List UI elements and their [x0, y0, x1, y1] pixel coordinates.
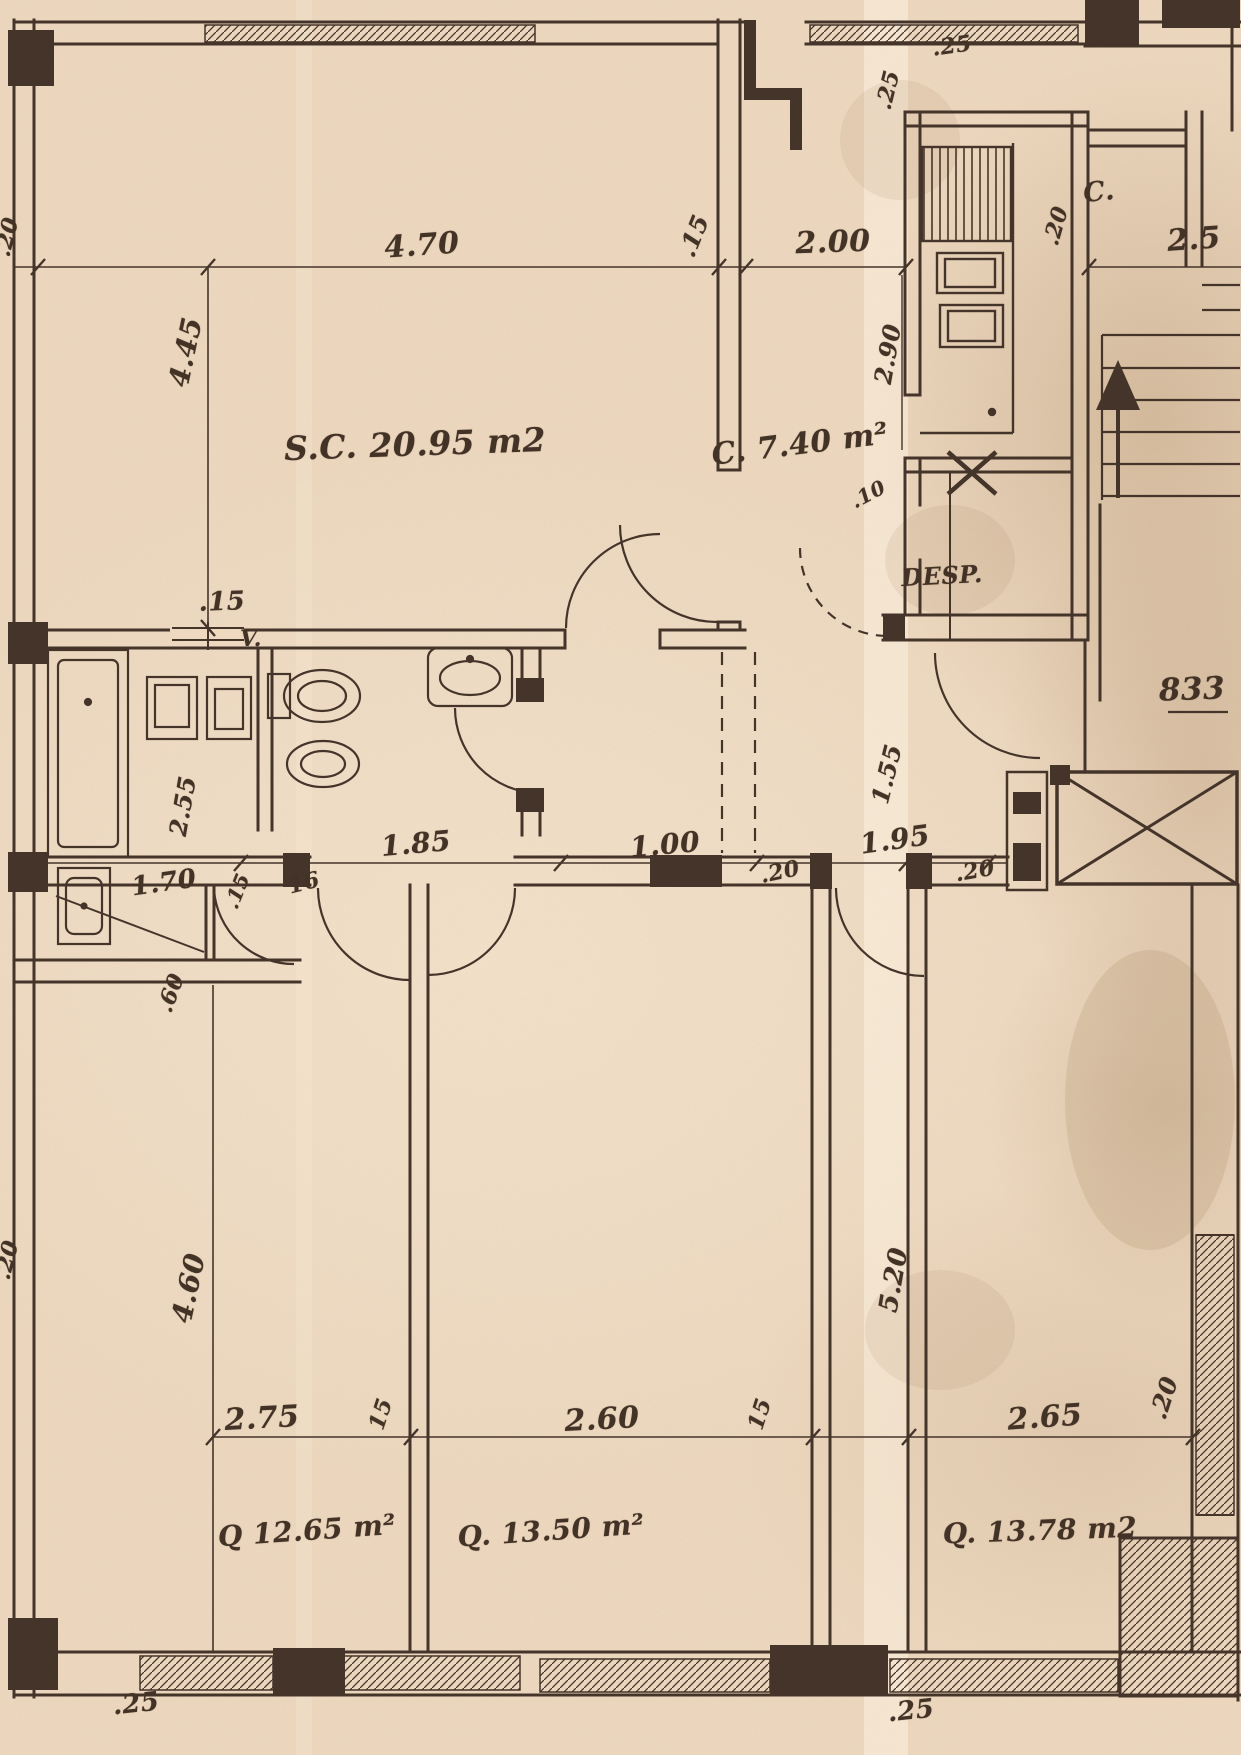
room-bed2-label: Q. 13.50 m²	[457, 1511, 646, 1552]
dim-wall-15-bath: .15	[198, 588, 246, 616]
floor-plan-scan: 4.704.45.152.00.25.25C..202.52.90S.C. 20…	[0, 0, 1241, 1755]
sheet-number-label: 833	[1158, 673, 1225, 706]
dim-wall-15-bed1: 15	[366, 1396, 397, 1433]
dim-height-155: 1.55	[868, 742, 906, 806]
dim-wall-15-top: .15	[675, 211, 713, 260]
dim-wall-20-bed3: .20	[1146, 1374, 1182, 1423]
dim-25-top: .25	[931, 32, 973, 59]
dim-width-bed1: 2.75	[224, 1402, 301, 1436]
dim-door-10: .10	[847, 477, 888, 512]
dim-25-right: 2.5	[1166, 223, 1222, 257]
dim-25-bottom-right: .25	[886, 1696, 935, 1727]
dim-25-bottom-left: .25	[111, 1689, 160, 1720]
label-stairhall-c: C.	[1082, 177, 1116, 207]
dim-width-195: 1.95	[858, 821, 931, 858]
dim-wall-15-bed2: 15	[745, 1396, 776, 1433]
dim-width-laundry: 1.70	[130, 866, 198, 901]
dim-height-bed3: 5.20	[876, 1246, 913, 1315]
dim-wall-15-mid: .15	[221, 870, 253, 911]
room-pantry-label: DESP.	[901, 562, 984, 590]
dim-height-living: 4.45	[165, 315, 207, 389]
room-bed1-label: Q 12.65 m²	[217, 1511, 397, 1551]
dim-20-kitchen-top: .20	[1040, 204, 1072, 248]
dim-width-bath: 1.85	[380, 827, 452, 861]
room-bed3-label: Q. 13.78 m2	[942, 1514, 1137, 1549]
dim-width-living: 4.70	[384, 228, 461, 263]
dim-wall-16: 16	[286, 869, 322, 898]
room-living-label: S.C. 20.95 m2	[283, 423, 546, 465]
dim-wall-20-a: .20	[758, 857, 801, 887]
dim-width-bed3: 2.65	[1007, 1400, 1084, 1435]
dim-25-top-wall: .25	[873, 68, 904, 112]
dim-height-bed1: 4.60	[168, 1251, 210, 1325]
dim-20-left-bottom: .20	[0, 1238, 22, 1282]
dim-height-kitchen: 2.90	[871, 322, 905, 386]
dim-width-hall: 2.00	[795, 227, 871, 260]
dim-20-left-top: .20	[0, 215, 22, 259]
dim-wall-20-b: .20	[954, 857, 997, 886]
dim-height-laundry: 2.55	[166, 774, 200, 838]
room-kitchen-label: C. 7.40 m²	[710, 419, 890, 470]
dim-width-bed2: 2.60	[564, 1403, 641, 1437]
dim-closet-60: .60	[154, 971, 188, 1016]
dim-width-corridor: 1.00	[629, 828, 701, 862]
label-vent: V.	[240, 628, 262, 650]
plan-text-labels: 4.704.45.152.00.25.25C..202.52.90S.C. 20…	[0, 0, 1241, 1755]
